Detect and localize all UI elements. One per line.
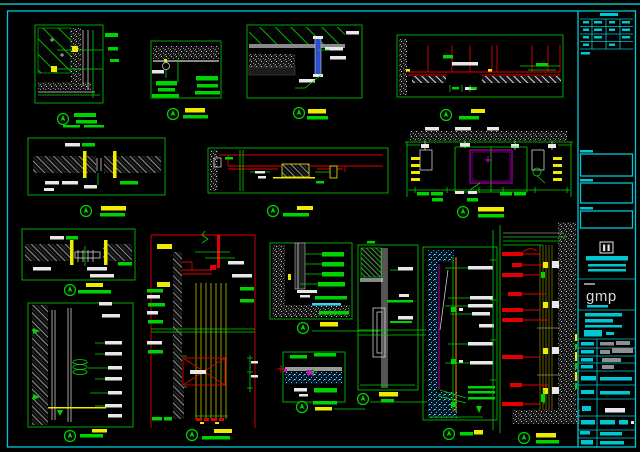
revision-table-text [583,21,630,46]
detail-drawing-2 [151,41,221,120]
detail-callout [81,206,127,217]
detail-callout [65,429,108,442]
title-block-header-text [600,13,618,16]
detail-drawing-15 [490,222,580,444]
detail-drawing-10 [147,231,258,441]
detail-callout [358,392,428,405]
cad-canvas[interactable]: gmp [0,0,640,452]
detail-callout [519,433,560,444]
detail-callout [187,429,233,441]
approval-rows [580,341,634,445]
detail-callout [294,108,329,120]
detail-drawing-5 [28,125,165,217]
scale-value [605,408,625,413]
detail-callout [444,429,484,440]
detail-callout [58,113,98,125]
gmp-logo-text: gmp [586,288,617,305]
detail-callout [298,322,381,334]
detail-callout [65,283,112,296]
detail-callout [297,401,366,413]
detail-drawing-3 [247,25,362,120]
detail-callout [441,109,486,121]
detail-drawing-8 [22,229,135,296]
detail-drawing-6 [208,148,388,217]
detail-drawing-4 [397,35,563,121]
company-name-text [586,256,628,261]
detail-drawing-7 [405,127,573,218]
detail-drawing-12 [277,352,365,413]
detail-drawing-14 [423,247,497,440]
detail-callout [268,206,314,217]
detail-drawing-13 [358,241,428,405]
company-logo [600,242,613,253]
drawing-sheet: gmp [0,0,640,452]
detail-callout [168,108,209,120]
detail-drawing-9 [28,302,133,442]
detail-callout [458,207,505,218]
detail-drawing-1 [35,25,119,125]
title-block: gmp [578,11,635,448]
